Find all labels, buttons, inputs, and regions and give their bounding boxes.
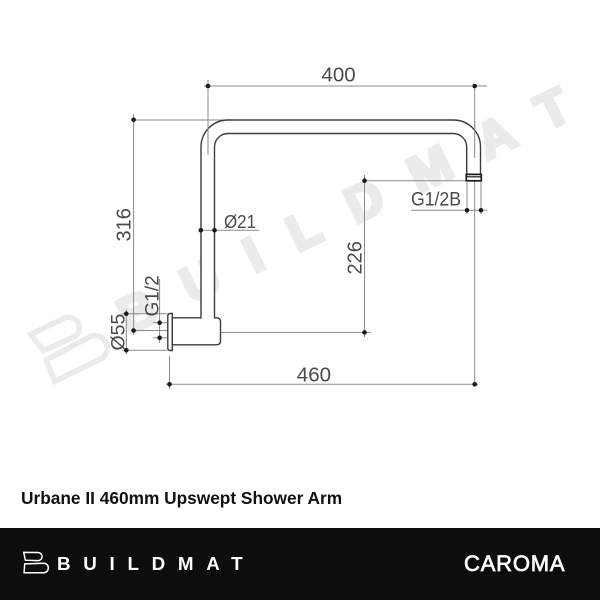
svg-text:G1/2B: G1/2B — [411, 190, 461, 211]
svg-text:Ø55: Ø55 — [108, 313, 130, 350]
svg-text:400: 400 — [322, 63, 356, 86]
svg-text:226: 226 — [345, 241, 367, 274]
svg-text:316: 316 — [114, 208, 136, 241]
svg-text:Ø21: Ø21 — [224, 211, 256, 232]
svg-text:BUILDMAT: BUILDMAT — [109, 62, 600, 344]
svg-text:460: 460 — [297, 364, 331, 387]
svg-text:G1/2: G1/2 — [143, 275, 164, 316]
